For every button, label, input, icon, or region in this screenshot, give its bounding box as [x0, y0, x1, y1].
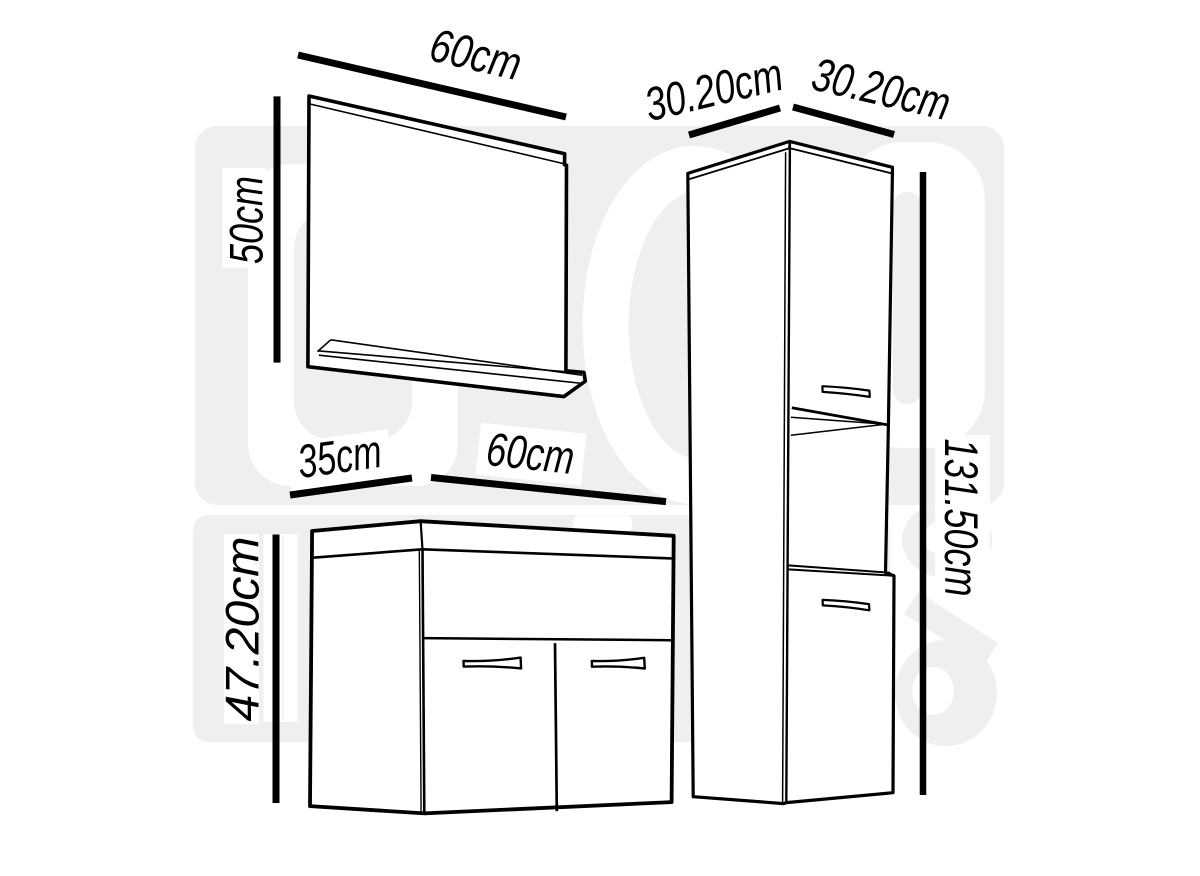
svg-text:50cm: 50cm [219, 176, 272, 264]
svg-text:47.20cm: 47.20cm [215, 537, 268, 722]
svg-text:131.50cm: 131.50cm [935, 439, 988, 597]
svg-text:60cm: 60cm [484, 422, 577, 484]
